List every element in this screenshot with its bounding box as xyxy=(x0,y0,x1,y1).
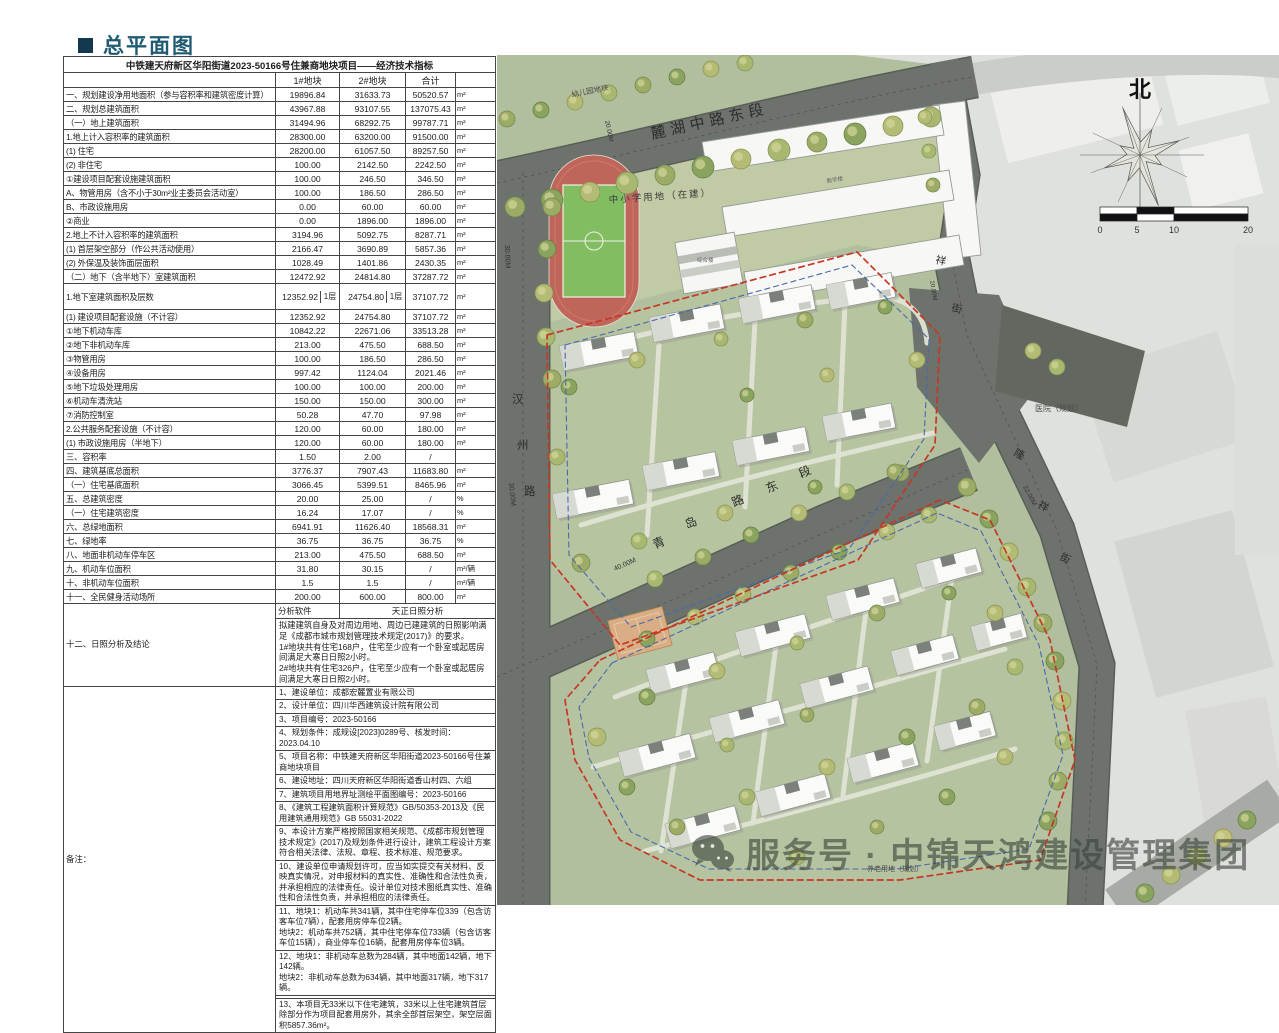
indicator-row: ④设备用房997.421124.042021.46m² xyxy=(64,366,496,380)
tree xyxy=(616,172,638,194)
hospital-label: 医院（规划） xyxy=(1035,403,1083,413)
indicator-row: （一）住宅建筑密度16.2417.07/% xyxy=(64,506,496,520)
tree xyxy=(844,123,866,145)
indicator-row: (1) 建设项目配套设施（不计容）12352.9224754.8037107.7… xyxy=(64,310,496,324)
tree xyxy=(561,379,577,395)
tree xyxy=(1049,359,1065,375)
notes-label: 备注： xyxy=(64,686,276,1033)
sunlight-analysis-section: 十二、日照分析及结论 分析软件 天正日照分析 拟建建筑自身及对周边用地、周边已建… xyxy=(64,604,496,687)
tree xyxy=(549,449,565,465)
indicator-row: 十一、全民健身活动场所200.00600.00800.00m² xyxy=(64,590,496,604)
table-title: 中铁建天府新区华阳街道2023-50166号住兼商地块项目——经济技术指标 xyxy=(64,57,496,73)
tree xyxy=(669,819,685,835)
tree xyxy=(647,571,663,587)
header-total: 合计 xyxy=(406,73,456,88)
indicator-row: 1.地下室建筑面积及层数12352.921层24754.801层37107.72… xyxy=(64,284,496,310)
indicator-row: 八、地面非机动车停车区213.00475.50688.50m² xyxy=(64,548,496,562)
tree xyxy=(695,549,711,565)
indicator-row: (1) 住宅28200.0061057.5089257.50m² xyxy=(64,144,496,158)
tree xyxy=(739,789,755,805)
indicator-rows: 一、规划建设净用地面积（参与容积率和建筑密度计算）19896.8431633.7… xyxy=(64,88,496,604)
indicator-row: （二）地下（含半地下）室建筑面积12472.9224814.8037287.72… xyxy=(64,270,496,284)
indicator-row: （一）地上建筑面积31494.9668292.7599787.71m² xyxy=(64,116,496,130)
tree xyxy=(921,507,937,523)
svg-text:0: 0 xyxy=(1097,225,1102,235)
analysis-conclusion: 拟建建筑自身及对周边用地、周边已建建筑的日照影响满足《成都市城市规划管理技术规定… xyxy=(276,619,496,687)
tree xyxy=(887,464,903,480)
tree xyxy=(909,352,925,368)
indicator-row: ⑥机动车清洗站150.00150.00300.00m² xyxy=(64,394,496,408)
tree xyxy=(820,368,834,382)
indicator-row: ①建设项目配套设施建筑面积100.00246.50346.50m² xyxy=(64,172,496,186)
tree xyxy=(580,182,600,202)
conclusion-line-2: 1#地块共有住宅168户，住宅至少应有一个卧室或起居房间满足大寒日日照2小时。 xyxy=(279,642,492,664)
tree xyxy=(703,61,719,77)
tree xyxy=(790,636,804,650)
tree xyxy=(692,156,714,178)
indicator-row: 六、总绿地面积6941.9111626.4018568.31m² xyxy=(64,520,496,534)
indicator-row: A、物管用房（含不小于30m²业主委员会活动室）100.00186.50286.… xyxy=(64,186,496,200)
analysis-software-value: 天正日照分析 xyxy=(340,604,496,619)
header-plot1: 1#地块 xyxy=(276,73,340,88)
tree xyxy=(939,789,955,805)
indicator-row: (2) 非住宅100.002142.502242.50m² xyxy=(64,158,496,172)
indicators-table: 中铁建天府新区华阳街道2023-50166号住兼商地块项目——经济技术指标 1#… xyxy=(63,56,496,1033)
tree xyxy=(537,328,555,346)
indicator-row: ⑤地下垃圾处理用房100.00100.00200.00m² xyxy=(64,380,496,394)
tree xyxy=(533,102,549,118)
tree xyxy=(737,55,753,71)
analysis-software-row: 十二、日照分析及结论 分析软件 天正日照分析 xyxy=(64,604,496,619)
tree xyxy=(958,478,976,496)
tree xyxy=(791,505,807,521)
indicator-row: 2.地上不计入容积率的建筑面积3194.965092.758287.71m² xyxy=(64,228,496,242)
tree xyxy=(543,370,561,388)
svg-text:州: 州 xyxy=(517,439,529,452)
tree xyxy=(918,110,932,124)
conclusion-line-3: 2#地块共有住宅326户，住宅至少应有一个卧室或起居房间满足大寒日日照2小时。 xyxy=(279,663,492,685)
analysis-software-label: 分析软件 xyxy=(276,604,340,619)
school-building-b-label: 综合楼 xyxy=(697,256,714,264)
tree xyxy=(505,197,525,217)
tree xyxy=(717,505,733,521)
analysis-row-label: 十二、日照分析及结论 xyxy=(64,604,276,687)
svg-text:汉: 汉 xyxy=(512,393,524,406)
tree xyxy=(1034,614,1052,632)
tree xyxy=(619,779,635,795)
indicator-row: ③物管用房100.00186.50286.50m² xyxy=(64,352,496,366)
table-header-row: 1#地块 2#地块 合计 xyxy=(64,73,496,88)
watermark: 服务号 · 中锦天鸿建设管理集团 xyxy=(690,828,1250,877)
indicator-row: (1) 市政设施用房（半地下）120.0060.00180.00m² xyxy=(64,436,496,450)
tree xyxy=(926,178,940,192)
indicator-row: 1.地上计入容积率的建筑面积28300.0063200.0091500.00m² xyxy=(64,130,496,144)
indicator-row: 三、容积率1.502.00/ xyxy=(64,450,496,464)
tree xyxy=(942,586,956,600)
indicator-row: 五、总建筑密度20.0025.00/% xyxy=(64,492,496,506)
tree xyxy=(1238,811,1256,829)
tree xyxy=(743,527,759,543)
indicator-row: ②商业0.001896.001896.00m² xyxy=(64,214,496,228)
tree xyxy=(878,300,892,314)
tree xyxy=(714,332,728,346)
tree xyxy=(535,284,553,302)
tree xyxy=(797,312,813,328)
tree xyxy=(768,139,790,161)
tree xyxy=(731,149,751,169)
tree xyxy=(631,533,647,549)
indicator-row: （一）住宅基底面积3066.455399.518465.96m² xyxy=(64,478,496,492)
indicator-row: 2.公共服务配套设施（不计容）120.0060.00180.00m² xyxy=(64,422,496,436)
indicator-row: (1) 首层架空部分（作公共活动使用）2166.473690.895857.36… xyxy=(64,242,496,256)
site-plan-map: 麓湖中路东段 幼儿园地块 20.00M 中小学用地（在建） 教学楼 综合楼 30… xyxy=(497,55,1279,905)
economic-indicator-table: 中铁建天府新区华阳街道2023-50166号住兼商地块项目——经济技术指标 1#… xyxy=(63,56,495,1033)
indicator-row: 七、绿地率36.7536.7536.75% xyxy=(64,534,496,548)
tree xyxy=(899,729,915,745)
tree xyxy=(538,240,556,258)
wechat-icon xyxy=(690,833,736,873)
indicator-row: (2) 外保温及装饰面层面积1028.491401.862430.35m² xyxy=(64,256,496,270)
indicator-row: 九、机动车位面积31.8030.15/m²/辆 xyxy=(64,562,496,576)
tree xyxy=(807,132,827,152)
tree xyxy=(883,116,903,136)
tree xyxy=(808,480,822,494)
indicator-row: ⑦消防控制室50.2847.7097.98m² xyxy=(64,408,496,422)
tree xyxy=(980,510,998,528)
tree xyxy=(709,663,725,679)
tree xyxy=(639,689,655,705)
conclusion-line-1: 拟建建筑自身及对周边用地、周边已建建筑的日照影响满足《成都市城市规划管理技术规定… xyxy=(279,620,492,642)
svg-text:路: 路 xyxy=(524,484,536,498)
tree xyxy=(987,605,1003,621)
tree xyxy=(588,728,606,746)
tree xyxy=(839,484,855,500)
tree xyxy=(869,605,885,621)
tree xyxy=(997,749,1013,765)
tree xyxy=(819,759,835,775)
indicator-row: 一、规划建设净用地面积（参与容积率和建筑密度计算）19896.8431633.7… xyxy=(64,88,496,102)
tree xyxy=(499,111,515,127)
tree xyxy=(740,388,754,402)
svg-text:10: 10 xyxy=(1169,225,1179,235)
notes-section: 备注：1、建设单位：成都宏麓置业有限公司2、设计单位：四川华西建筑设计院有限公司… xyxy=(64,686,496,1033)
tree xyxy=(800,708,814,722)
indicator-row: 十、非机动车位面积1.51.5/m²/辆 xyxy=(64,576,496,590)
tree xyxy=(1007,659,1023,675)
tree xyxy=(1136,884,1154,902)
tree xyxy=(655,165,675,185)
tree xyxy=(969,699,985,715)
tree xyxy=(1025,343,1041,359)
header-empty xyxy=(64,73,276,88)
table-title-row: 中铁建天府新区华阳街道2023-50166号住兼商地块项目——经济技术指标 xyxy=(64,57,496,73)
svg-text:20: 20 xyxy=(1243,225,1253,235)
note-row: 备注：1、建设单位：成都宏麓置业有限公司 xyxy=(64,686,496,700)
header-unit xyxy=(456,73,496,88)
tree xyxy=(629,352,645,368)
indicator-row: ①地下机动车库10842.2222671.0633513.28m² xyxy=(64,324,496,338)
indicator-row: B、市政设施用房0.0060.0060.00m² xyxy=(64,200,496,214)
tree xyxy=(635,77,651,93)
watermark-text: 服务号 · 中锦天鸿建设管理集团 xyxy=(746,828,1250,877)
indicator-row: 四、建筑基底总面积3776.377907.4311683.80m² xyxy=(64,464,496,478)
tree xyxy=(922,144,936,158)
west-road-width-1: 30.00M xyxy=(503,245,511,269)
tree xyxy=(720,738,734,752)
svg-text:5: 5 xyxy=(1134,225,1139,235)
indicator-row: ②地下非机动车库213.00475.50688.50m² xyxy=(64,338,496,352)
tree xyxy=(669,69,685,85)
tree xyxy=(543,198,561,216)
header-plot2: 2#地块 xyxy=(340,73,406,88)
indicator-row: 二、规划总建筑面积43967.8893107.55137075.43m² xyxy=(64,102,496,116)
title-bullet-icon xyxy=(78,38,93,53)
